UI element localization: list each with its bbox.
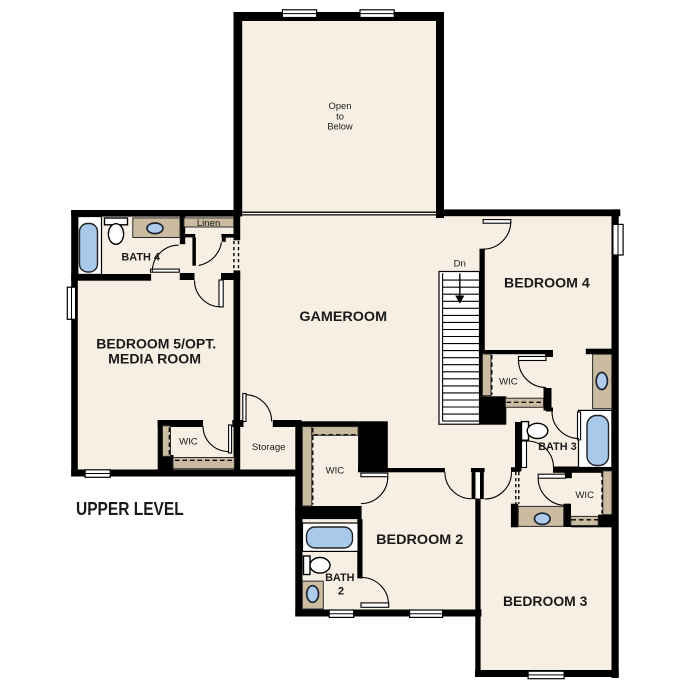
svg-text:WIC: WIC <box>499 377 518 388</box>
svg-text:WIC: WIC <box>326 466 345 477</box>
svg-text:Storage: Storage <box>252 442 286 453</box>
svg-text:Below: Below <box>327 122 353 132</box>
svg-text:Open: Open <box>329 101 352 111</box>
svg-text:2: 2 <box>338 586 344 598</box>
svg-text:BATH: BATH <box>325 572 355 584</box>
svg-text:WIC: WIC <box>179 436 198 447</box>
svg-text:BATH 3: BATH 3 <box>538 441 577 453</box>
svg-text:BEDROOM 2: BEDROOM 2 <box>376 531 463 547</box>
svg-text:MEDIA ROOM: MEDIA ROOM <box>108 351 201 367</box>
svg-text:BATH 4: BATH 4 <box>121 252 160 264</box>
svg-text:Dn: Dn <box>454 259 466 270</box>
svg-text:BEDROOM 3: BEDROOM 3 <box>503 593 588 609</box>
svg-text:BEDROOM 4: BEDROOM 4 <box>504 274 590 290</box>
svg-text:WIC: WIC <box>575 490 594 501</box>
svg-text:to: to <box>336 111 344 121</box>
svg-text:BEDROOM 5/OPT.: BEDROOM 5/OPT. <box>96 335 216 351</box>
svg-text:GAMEROOM: GAMEROOM <box>299 308 387 324</box>
svg-text:Linen: Linen <box>197 218 220 229</box>
svg-text:UPPER LEVEL: UPPER LEVEL <box>76 499 184 519</box>
